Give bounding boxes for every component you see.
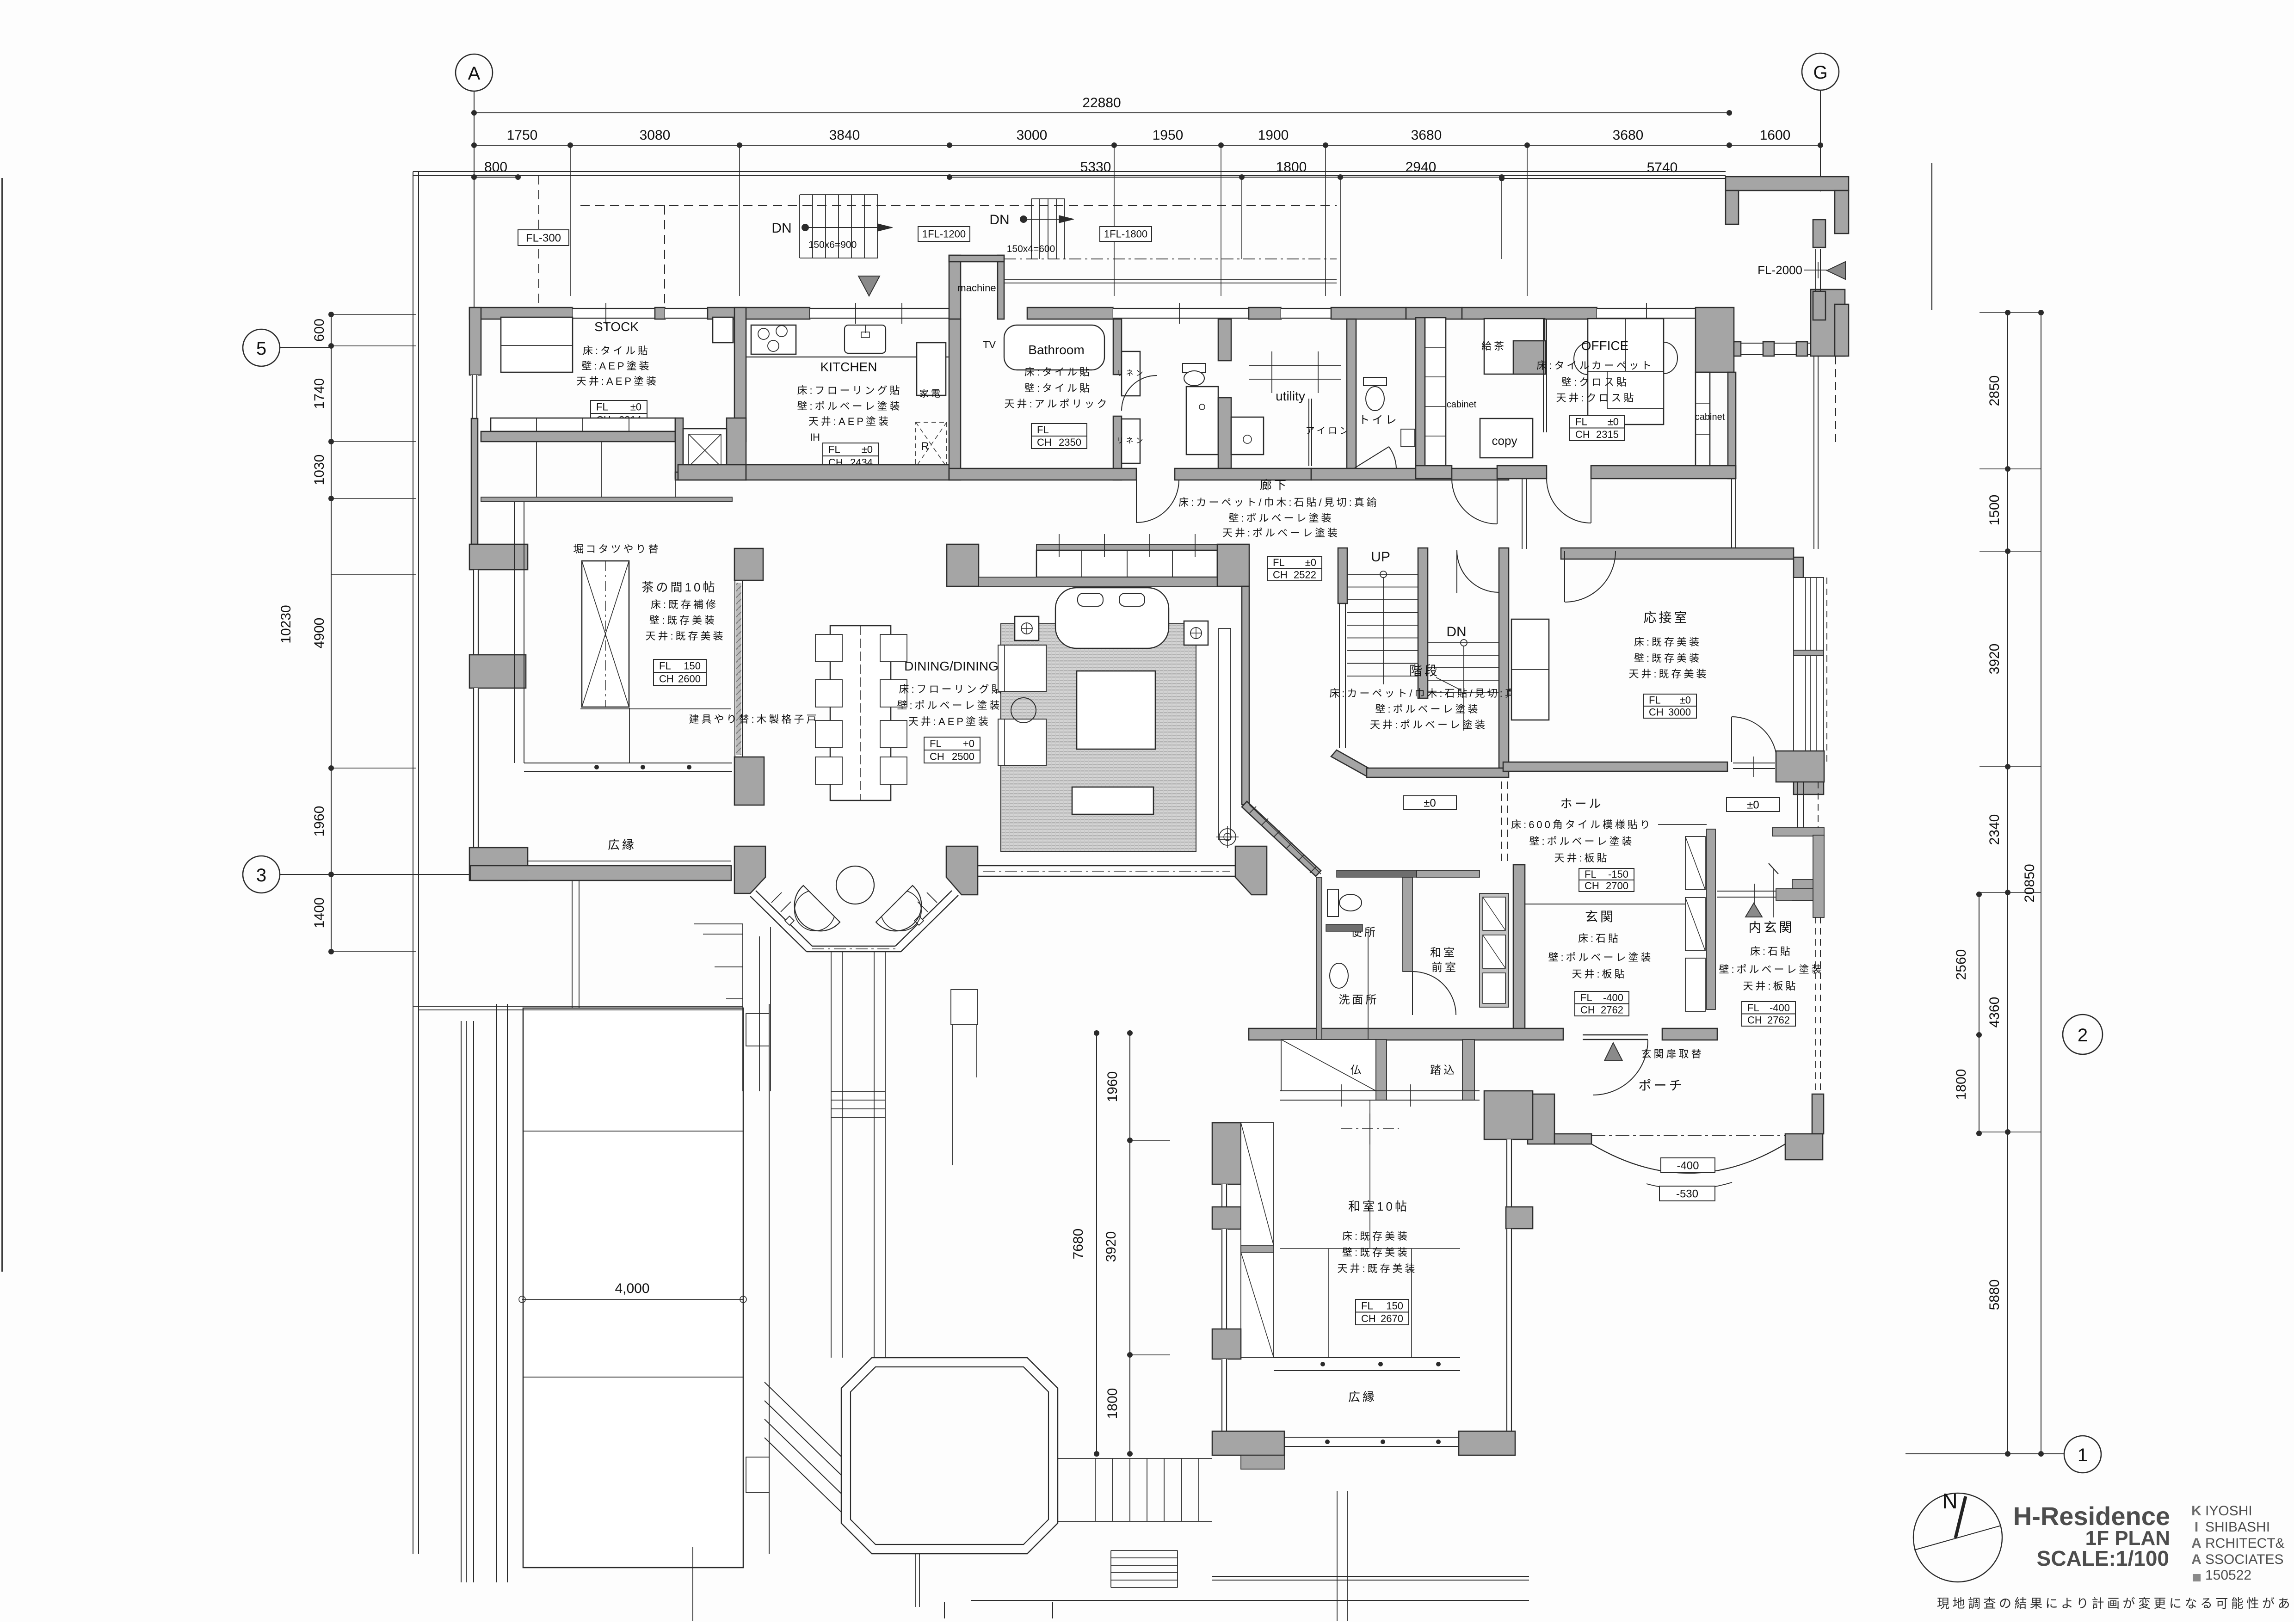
svg-text:FL: FL: [1580, 992, 1592, 1003]
svg-text:-400: -400: [1603, 992, 1623, 1003]
svg-text:床:既存美装: 床:既存美装: [1342, 1230, 1410, 1242]
svg-text:5880: 5880: [1987, 1280, 2002, 1310]
svg-text:広縁: 広縁: [608, 838, 636, 852]
svg-text:DINING/DINING: DINING/DINING: [904, 659, 999, 673]
svg-text:アイロン: アイロン: [1306, 426, 1351, 436]
svg-text:天井:AEP塗装: 天井:AEP塗装: [576, 375, 659, 387]
svg-text:utility: utility: [1276, 389, 1305, 403]
svg-text:堀コタツやり替: 堀コタツやり替: [573, 543, 660, 555]
svg-text:廊下: 廊下: [1260, 478, 1289, 492]
svg-text:給茶: 給茶: [1481, 340, 1506, 352]
svg-text:10230: 10230: [278, 605, 294, 643]
svg-text:建具やり替:木製格子戸: 建具やり替:木製格子戸: [689, 714, 819, 725]
svg-text:和室10帖: 和室10帖: [1348, 1200, 1409, 1213]
svg-text:1: 1: [2078, 1445, 2088, 1465]
svg-text:内玄関: 内玄関: [1748, 920, 1794, 935]
svg-text:3080: 3080: [640, 128, 671, 143]
svg-text:1960: 1960: [1105, 1071, 1120, 1102]
svg-text:22880: 22880: [1082, 95, 1121, 111]
svg-text:天井:既存美装: 天井:既存美装: [1628, 668, 1708, 680]
svg-text:2560: 2560: [1954, 949, 1969, 980]
svg-text:H-Residence: H-Residence: [2013, 1501, 2170, 1531]
svg-text:3: 3: [256, 865, 266, 886]
svg-text:壁:タイル貼: 壁:タイル貼: [1024, 382, 1092, 394]
svg-text:壁:ポルベーレ塗装: 壁:ポルベーレ塗装: [1228, 512, 1333, 524]
svg-text:洗面所: 洗面所: [1339, 994, 1379, 1006]
svg-text:1740: 1740: [312, 378, 327, 409]
svg-text:FL: FL: [596, 401, 608, 413]
svg-text:3920: 3920: [1987, 644, 2002, 675]
svg-text:床:カーペット/巾木:石貼/見切:真鍮: 床:カーペット/巾木:石貼/見切:真鍮: [1329, 688, 1530, 699]
svg-text:N: N: [1942, 1489, 1957, 1513]
svg-text:cabinet: cabinet: [1447, 400, 1477, 410]
svg-text:踏込: 踏込: [1430, 1064, 1457, 1077]
svg-text:1800: 1800: [1105, 1388, 1120, 1419]
svg-text:FL: FL: [1575, 416, 1587, 427]
svg-text:5330: 5330: [1080, 160, 1111, 175]
svg-text:DN: DN: [771, 221, 791, 236]
svg-text:FL: FL: [659, 660, 671, 672]
svg-text:2350: 2350: [1059, 437, 1081, 448]
svg-text:床:カーペット/巾木:石貼/見切:真鍮: 床:カーペット/巾木:石貼/見切:真鍮: [1178, 497, 1379, 508]
svg-text:天井:アルポリック: 天井:アルポリック: [1005, 398, 1110, 410]
svg-text:CH: CH: [1361, 1313, 1376, 1324]
svg-text:応接室: 応接室: [1643, 610, 1689, 625]
svg-text:前室: 前室: [1431, 961, 1458, 974]
svg-text:1750: 1750: [507, 128, 538, 143]
svg-text:-400: -400: [1677, 1159, 1699, 1172]
svg-text:IH: IH: [810, 431, 820, 443]
svg-text:天井:ポルベーレ塗装: 天井:ポルベーレ塗装: [1370, 719, 1487, 731]
svg-text:壁:ポルベーレ塗装: 壁:ポルベーレ塗装: [1375, 703, 1480, 715]
svg-text:壁:既存美装: 壁:既存美装: [1342, 1247, 1410, 1258]
svg-text:2850: 2850: [1987, 375, 2002, 406]
svg-text:床:タイル貼: 床:タイル貼: [583, 345, 650, 357]
svg-text:20850: 20850: [2022, 864, 2037, 902]
svg-text:現地調査の結果により計画が変更になる可能性があります 。: 現地調査の結果により計画が変更になる可能性があります 。: [1937, 1597, 2294, 1611]
svg-text:天井:板貼: 天井:板貼: [1572, 968, 1627, 980]
svg-text:1900: 1900: [1258, 128, 1289, 143]
svg-text:+0: +0: [963, 738, 974, 750]
svg-text:天井:ポルベーレ塗装: 天井:ポルベーレ塗装: [1222, 527, 1340, 539]
svg-text:壁:ポルベーレ塗装: 壁:ポルベーレ塗装: [897, 700, 1002, 711]
svg-text:OFFICE: OFFICE: [1581, 338, 1629, 353]
svg-text:CH: CH: [1037, 437, 1052, 448]
svg-text:FL: FL: [1361, 1300, 1373, 1311]
svg-text:CH: CH: [1580, 1004, 1595, 1015]
svg-text:R: R: [921, 440, 929, 453]
svg-text:±0: ±0: [1680, 695, 1691, 706]
svg-text:±0: ±0: [630, 401, 641, 413]
svg-text:2315: 2315: [1596, 429, 1619, 440]
svg-text:K: K: [2191, 1503, 2201, 1519]
svg-text:150522: 150522: [2205, 1568, 2251, 1583]
svg-text:2670: 2670: [1381, 1313, 1403, 1324]
svg-text:2700: 2700: [1606, 880, 1628, 892]
svg-text:床:石貼: 床:石貼: [1750, 946, 1793, 957]
svg-text:CH: CH: [1273, 569, 1288, 580]
svg-text:仏: 仏: [1350, 1064, 1364, 1077]
svg-text:天井:クロス貼: 天井:クロス貼: [1556, 392, 1636, 404]
svg-text:天井:板貼: 天井:板貼: [1743, 980, 1798, 992]
svg-text:A: A: [2191, 1536, 2201, 1551]
svg-text:FL: FL: [930, 738, 942, 750]
svg-text:FL-300: FL-300: [526, 232, 561, 244]
svg-text:FL: FL: [1585, 868, 1597, 880]
svg-text:ホール: ホール: [1560, 797, 1603, 811]
svg-text:1500: 1500: [1987, 495, 2002, 526]
svg-text:SHIBASHI: SHIBASHI: [2205, 1519, 2270, 1535]
svg-text:4900: 4900: [312, 618, 327, 649]
svg-text:3000: 3000: [1668, 707, 1691, 718]
svg-text:壁:既存美装: 壁:既存美装: [649, 615, 717, 626]
svg-text:800: 800: [484, 160, 507, 175]
svg-text:ポーチ: ポーチ: [1638, 1078, 1684, 1093]
svg-text:SCALE:1/100: SCALE:1/100: [2037, 1546, 2169, 1570]
svg-text:150x6=900: 150x6=900: [808, 240, 857, 250]
svg-text:1800: 1800: [1276, 160, 1307, 175]
svg-text:7680: 7680: [1071, 1229, 1086, 1260]
svg-text:600: 600: [312, 319, 327, 342]
svg-text:2600: 2600: [678, 673, 701, 685]
svg-text:和室: 和室: [1430, 947, 1457, 959]
svg-text:machine: machine: [957, 282, 996, 294]
svg-text:FL: FL: [1649, 695, 1661, 706]
svg-text:3840: 3840: [829, 128, 860, 143]
svg-text:床:600角タイル模様貼り: 床:600角タイル模様貼り: [1511, 819, 1653, 830]
svg-text:天井:板貼: 天井:板貼: [1554, 852, 1609, 864]
svg-text:copy: copy: [1492, 434, 1517, 448]
svg-text:FL: FL: [1273, 557, 1285, 568]
svg-text:3680: 3680: [1411, 128, 1442, 143]
svg-text:3000: 3000: [1017, 128, 1048, 143]
svg-text:G: G: [1813, 62, 1827, 83]
svg-text:壁:ポルベーレ塗装: 壁:ポルベーレ塗装: [1719, 964, 1824, 975]
svg-text:1FL-1800: 1FL-1800: [1104, 228, 1147, 240]
svg-text:壁:既存美装: 壁:既存美装: [1634, 652, 1702, 664]
svg-text:CH: CH: [930, 751, 944, 763]
svg-text:リネン: リネン: [1116, 369, 1145, 377]
svg-text:1800: 1800: [1954, 1069, 1969, 1100]
svg-text:±0: ±0: [1747, 799, 1759, 811]
svg-text:1030: 1030: [312, 455, 327, 486]
svg-text:cabinet: cabinet: [1695, 412, 1725, 422]
svg-text:2762: 2762: [1767, 1014, 1790, 1026]
svg-text:4,000: 4,000: [615, 1281, 649, 1296]
svg-text:玄関: 玄関: [1585, 910, 1616, 924]
svg-text:リネン: リネン: [1116, 437, 1145, 445]
svg-text:±0: ±0: [1424, 797, 1436, 809]
svg-text:FL-2000: FL-2000: [1757, 263, 1802, 277]
svg-text:RCHITECT&: RCHITECT&: [2205, 1536, 2285, 1551]
svg-text:天井:AEP塗装: 天井:AEP塗装: [808, 416, 891, 427]
svg-text:FL: FL: [1747, 1002, 1759, 1014]
svg-text:±0: ±0: [1608, 416, 1619, 427]
svg-text:SSOCIATES: SSOCIATES: [2205, 1552, 2283, 1567]
svg-text:UP: UP: [1371, 549, 1390, 565]
svg-text:-400: -400: [1770, 1002, 1790, 1014]
svg-text:-530: -530: [1676, 1187, 1698, 1200]
svg-text:TV: TV: [983, 339, 996, 351]
svg-text:トイレ: トイレ: [1359, 414, 1399, 426]
svg-text:床:フローリング貼: 床:フローリング貼: [797, 385, 902, 396]
svg-text:CH: CH: [1747, 1014, 1762, 1026]
svg-text:CH: CH: [1575, 429, 1590, 440]
svg-text:5740: 5740: [1647, 160, 1678, 175]
svg-text:床:タイルカーペット: 床:タイルカーペット: [1536, 360, 1653, 371]
svg-text:±0: ±0: [1305, 557, 1316, 568]
svg-text:床:既存補修: 床:既存補修: [651, 599, 718, 610]
svg-text:壁:ポルベーレ塗装: 壁:ポルベーレ塗装: [1529, 836, 1634, 847]
svg-text:FL: FL: [1037, 424, 1049, 436]
svg-text:3920: 3920: [1104, 1231, 1119, 1262]
svg-text:STOCK: STOCK: [594, 320, 639, 334]
svg-text:150: 150: [1386, 1300, 1403, 1311]
svg-text:A: A: [2191, 1552, 2201, 1567]
svg-text:2762: 2762: [1601, 1004, 1623, 1015]
svg-text:1600: 1600: [1760, 128, 1791, 143]
svg-text:I: I: [2195, 1519, 2198, 1535]
svg-text:150: 150: [684, 660, 701, 672]
svg-text:1950: 1950: [1153, 128, 1184, 143]
svg-text:1960: 1960: [312, 806, 327, 837]
svg-text:150x4=600: 150x4=600: [1007, 244, 1055, 254]
svg-text:2522: 2522: [1294, 569, 1316, 580]
svg-text:床:タイル貼: 床:タイル貼: [1024, 366, 1092, 378]
svg-text:4360: 4360: [1987, 997, 2002, 1028]
svg-text:2340: 2340: [1987, 814, 2002, 845]
svg-text:5: 5: [256, 338, 266, 359]
svg-text:壁:AEP塗装: 壁:AEP塗装: [581, 360, 651, 372]
svg-text:床:フローリング貼: 床:フローリング貼: [899, 683, 1004, 695]
svg-text:茶の間10帖: 茶の間10帖: [642, 580, 717, 594]
svg-text:3680: 3680: [1613, 128, 1644, 143]
svg-text:IYOSHI: IYOSHI: [2205, 1503, 2252, 1519]
svg-text:階段: 階段: [1409, 664, 1440, 678]
svg-text:天井:AEP塗装: 天井:AEP塗装: [908, 716, 991, 727]
svg-text:Bathroom: Bathroom: [1028, 343, 1084, 357]
svg-text:CH: CH: [659, 673, 674, 685]
svg-text:DN: DN: [1446, 624, 1466, 640]
svg-text:天井:既存美装: 天井:既存美装: [1337, 1263, 1417, 1274]
svg-text:KITCHEN: KITCHEN: [820, 360, 877, 374]
svg-text:2940: 2940: [1406, 160, 1437, 175]
svg-text:家電: 家電: [919, 388, 943, 399]
svg-text:±0: ±0: [862, 444, 873, 455]
svg-text:DN: DN: [989, 212, 1009, 228]
svg-text:A: A: [468, 63, 481, 84]
svg-text:広縁: 広縁: [1348, 1390, 1377, 1404]
svg-text:玄関扉取替: 玄関扉取替: [1641, 1048, 1703, 1060]
svg-text:FL: FL: [828, 444, 840, 455]
svg-text:2500: 2500: [952, 751, 974, 763]
svg-text:床:石貼: 床:石貼: [1578, 933, 1621, 944]
svg-text:壁:クロス貼: 壁:クロス貼: [1561, 376, 1629, 388]
svg-text:CH: CH: [1585, 880, 1599, 892]
svg-text:1FL-1200: 1FL-1200: [922, 228, 966, 240]
svg-text:1400: 1400: [312, 898, 327, 929]
svg-text:-150: -150: [1608, 868, 1628, 880]
svg-text:壁:ポルベーレ塗装: 壁:ポルベーレ塗装: [797, 400, 902, 412]
svg-text:2: 2: [2078, 1025, 2088, 1046]
svg-text:壁:ポルベーレ塗装: 壁:ポルベーレ塗装: [1548, 952, 1653, 963]
svg-text:CH: CH: [1649, 707, 1664, 718]
svg-text:天井:既存美装: 天井:既存美装: [645, 630, 725, 642]
svg-text:床:既存美装: 床:既存美装: [1634, 636, 1702, 648]
